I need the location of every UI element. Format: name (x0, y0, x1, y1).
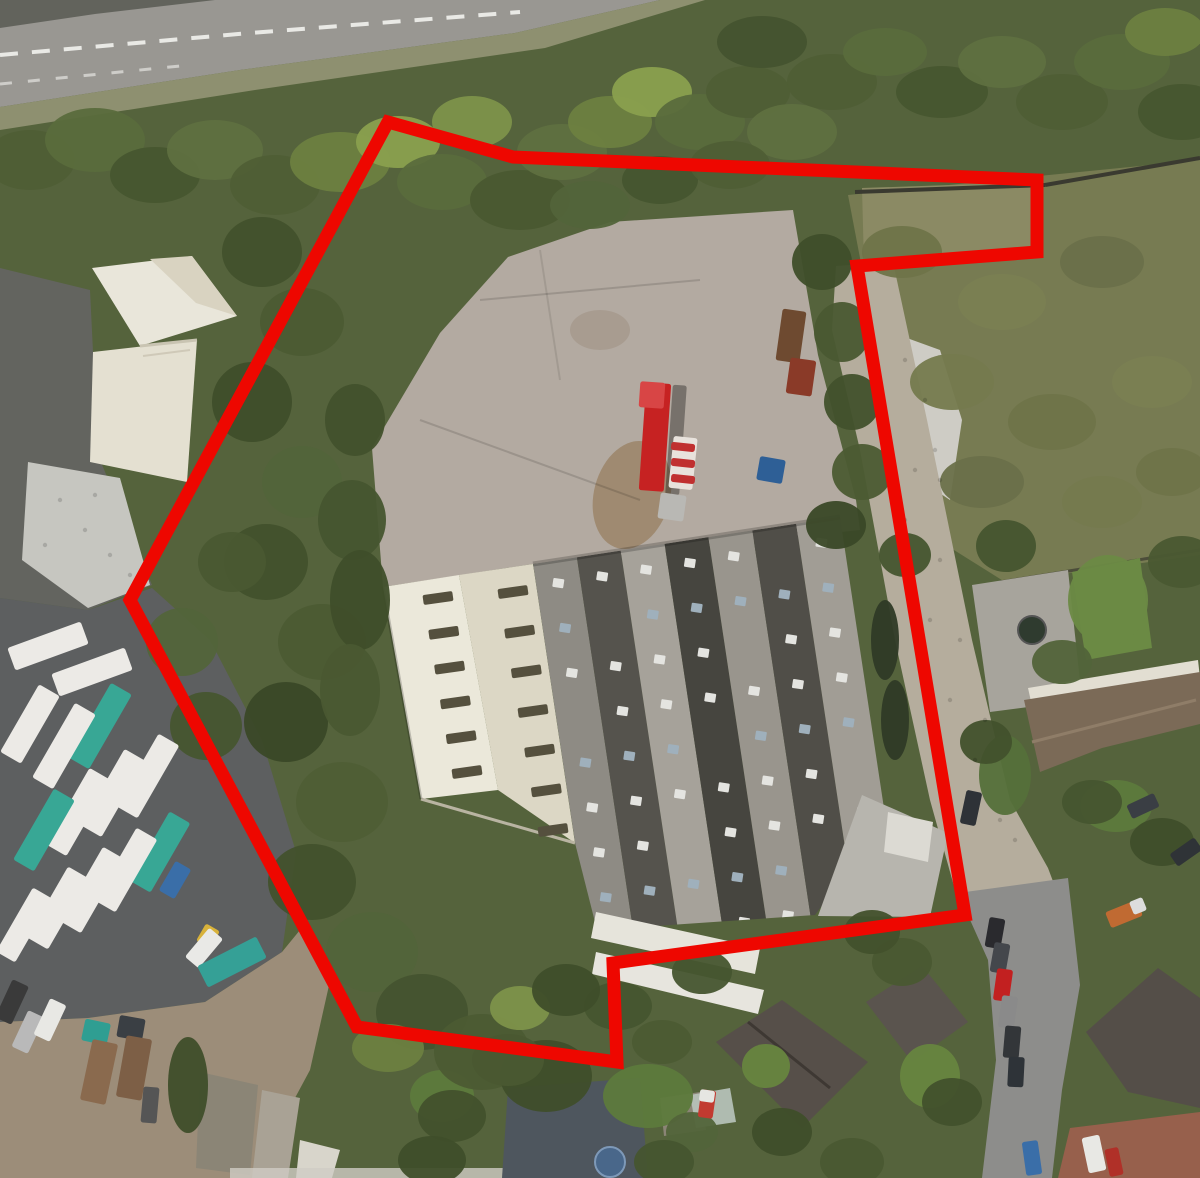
tree-canopy (958, 36, 1046, 88)
dirt-patch (570, 310, 630, 350)
aerial-photo-svg (0, 0, 1200, 1178)
tree-canopy (1008, 394, 1096, 450)
roof-skylight (762, 775, 774, 786)
roof-skylight (647, 609, 659, 620)
roof-skylight (755, 731, 767, 742)
roof-skylight (674, 789, 686, 800)
tree-canopy (881, 680, 909, 760)
roof-skylight (785, 634, 797, 645)
roof-skylight (734, 596, 746, 607)
tree-canopy (1062, 780, 1122, 824)
roof-skylight (623, 751, 635, 762)
tree-canopy (792, 234, 852, 290)
roof-skylight (566, 668, 578, 679)
aerial-site-photo (0, 0, 1200, 1178)
roof-skylight (616, 706, 628, 717)
truck-cab (657, 492, 686, 521)
roof-skylight (640, 564, 652, 575)
tree-canopy (320, 644, 380, 736)
car (1007, 1057, 1025, 1088)
tree-canopy (632, 1020, 692, 1064)
tree-canopy (806, 501, 866, 549)
roof-skylight (653, 654, 665, 665)
tree-canopy (940, 456, 1024, 508)
roof-skylight (684, 558, 696, 569)
tree-canopy (198, 532, 266, 592)
roof-skylight (799, 724, 811, 735)
roof-skylight (644, 885, 656, 896)
tree-canopy (222, 217, 302, 287)
tree-canopy (168, 1037, 208, 1133)
roof-skylight (768, 820, 780, 831)
white-building-wing (90, 340, 197, 482)
garden-trampoline (1018, 616, 1046, 644)
roof-skylight (812, 814, 824, 825)
roof-skylight (667, 744, 679, 755)
roof-skylight (586, 802, 598, 813)
tree-canopy (976, 520, 1036, 572)
tree-canopy (910, 354, 994, 410)
roof-skylight (718, 782, 730, 793)
tree-canopy (843, 28, 927, 76)
tree-canopy (532, 964, 600, 1016)
roof-skylight (552, 578, 564, 589)
roof-skylight (660, 699, 672, 710)
roof-skylight (630, 796, 642, 807)
tree-canopy (325, 384, 385, 456)
roof-skylight (731, 872, 743, 883)
tree-canopy (742, 1044, 790, 1088)
car (1003, 1025, 1022, 1058)
roof-skylight (596, 571, 608, 582)
roof-skylight (724, 827, 736, 838)
tree-canopy (871, 600, 899, 680)
tree-canopy (550, 181, 630, 229)
roof-skylight (822, 582, 834, 593)
tree-canopy (1068, 555, 1148, 645)
roof-skylight (600, 892, 612, 903)
blue-tarp (756, 456, 786, 484)
tree-canopy (244, 682, 328, 762)
tree-canopy (296, 762, 388, 842)
tree-canopy (752, 1108, 812, 1156)
tree-canopy (318, 480, 386, 560)
roof-skylight (559, 623, 571, 634)
roof-skylight (805, 769, 817, 780)
tree-canopy (717, 16, 807, 68)
roof-skylight (748, 686, 760, 697)
tree-canopy (418, 1090, 486, 1142)
trampoline (595, 1147, 625, 1177)
roof-skylight (593, 847, 605, 858)
roof-skylight (579, 757, 591, 768)
roof-skylight (704, 692, 716, 703)
roof-skylight (842, 717, 854, 728)
tree-canopy (1032, 640, 1092, 684)
roof-skylight (687, 879, 699, 890)
roof-skylight (792, 679, 804, 690)
roof-skylight (697, 647, 709, 658)
roof-skylight (778, 589, 790, 600)
tree-canopy (922, 1078, 982, 1126)
roof-skylight (728, 551, 740, 562)
roof-skylight (610, 661, 622, 672)
red-skip (786, 357, 817, 396)
tree-canopy (1060, 236, 1144, 288)
roof-skylight (836, 672, 848, 683)
tree-canopy (958, 274, 1046, 330)
tree-canopy (330, 550, 390, 650)
car-roof (699, 1089, 716, 1103)
tree-canopy (1112, 356, 1192, 408)
roof-skylight (691, 603, 703, 614)
tree-canopy (1062, 476, 1142, 528)
car-dark (140, 1086, 159, 1123)
tree-canopy (960, 720, 1012, 764)
roof-skylight (637, 840, 649, 851)
roof-skylight (829, 627, 841, 638)
red-trailer-front (639, 381, 666, 409)
roof-skylight (775, 865, 787, 876)
